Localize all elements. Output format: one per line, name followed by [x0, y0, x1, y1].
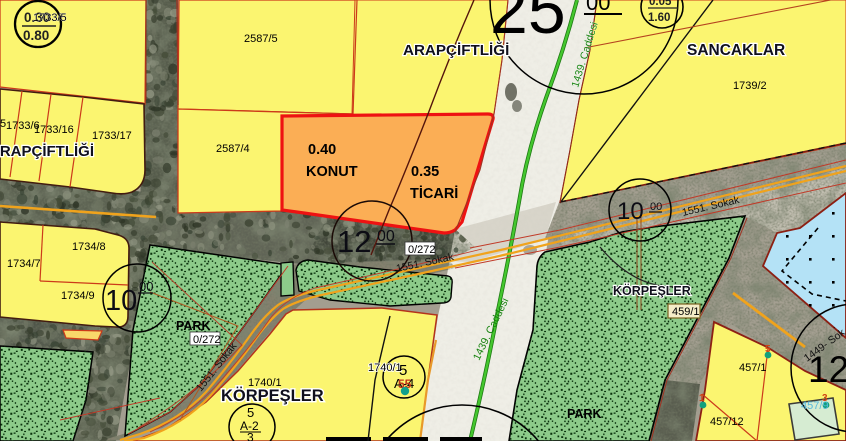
svg-text:457/12: 457/12 — [710, 416, 744, 428]
svg-text:1734/7: 1734/7 — [7, 258, 41, 270]
svg-text:5: 5 — [247, 405, 254, 420]
svg-text:1.60: 1.60 — [648, 12, 670, 24]
svg-text:KONUT: KONUT — [306, 164, 358, 180]
svg-text:0.05: 0.05 — [649, 0, 672, 8]
svg-text:12: 12 — [337, 224, 371, 259]
svg-text:1: 1 — [699, 393, 705, 404]
svg-text:0.40: 0.40 — [308, 142, 336, 158]
svg-text:TİCARİ: TİCARİ — [410, 185, 458, 202]
svg-text:0/272: 0/272 — [193, 334, 221, 346]
svg-text:10: 10 — [617, 198, 644, 225]
svg-text:1740/1: 1740/1 — [248, 377, 282, 389]
svg-text:0/272: 0/272 — [408, 244, 436, 256]
svg-text:00: 00 — [377, 228, 395, 245]
svg-text:25: 25 — [490, 0, 566, 48]
svg-text:1739/2: 1739/2 — [733, 80, 767, 92]
svg-text:1733/5: 1733/5 — [33, 12, 67, 24]
svg-text:00: 00 — [586, 0, 610, 15]
svg-text:ARAPÇİFTLİĞİ: ARAPÇİFTLİĞİ — [403, 41, 509, 59]
svg-text:00: 00 — [650, 201, 662, 213]
svg-text:PARK: PARK — [176, 319, 211, 333]
svg-text:KÖRPEŞLER: KÖRPEŞLER — [613, 283, 691, 298]
svg-text:3: 3 — [247, 431, 254, 441]
svg-text:457/1: 457/1 — [739, 362, 767, 374]
svg-text:10: 10 — [105, 285, 137, 317]
svg-text:0.80: 0.80 — [23, 28, 49, 43]
svg-text:459/1: 459/1 — [672, 306, 700, 318]
svg-text:1740/1: 1740/1 — [368, 362, 402, 374]
svg-text:1733/17: 1733/17 — [92, 130, 132, 142]
svg-text:SANCAKLAR: SANCAKLAR — [687, 42, 785, 59]
svg-text:5: 5 — [765, 344, 771, 355]
svg-text:PARK: PARK — [567, 407, 602, 421]
svg-text:1734/9: 1734/9 — [61, 290, 95, 302]
svg-text:2587/4: 2587/4 — [216, 143, 250, 155]
svg-text:0.35: 0.35 — [411, 164, 439, 180]
svg-text:3: 3 — [822, 393, 828, 404]
svg-text:ARAPÇİFTLİĞİ: ARAPÇİFTLİĞİ — [0, 142, 94, 160]
svg-text:00: 00 — [139, 279, 153, 294]
svg-text:1734/8: 1734/8 — [72, 241, 106, 253]
svg-text:2587/5: 2587/5 — [244, 33, 278, 45]
svg-text:1733/16: 1733/16 — [34, 124, 74, 136]
